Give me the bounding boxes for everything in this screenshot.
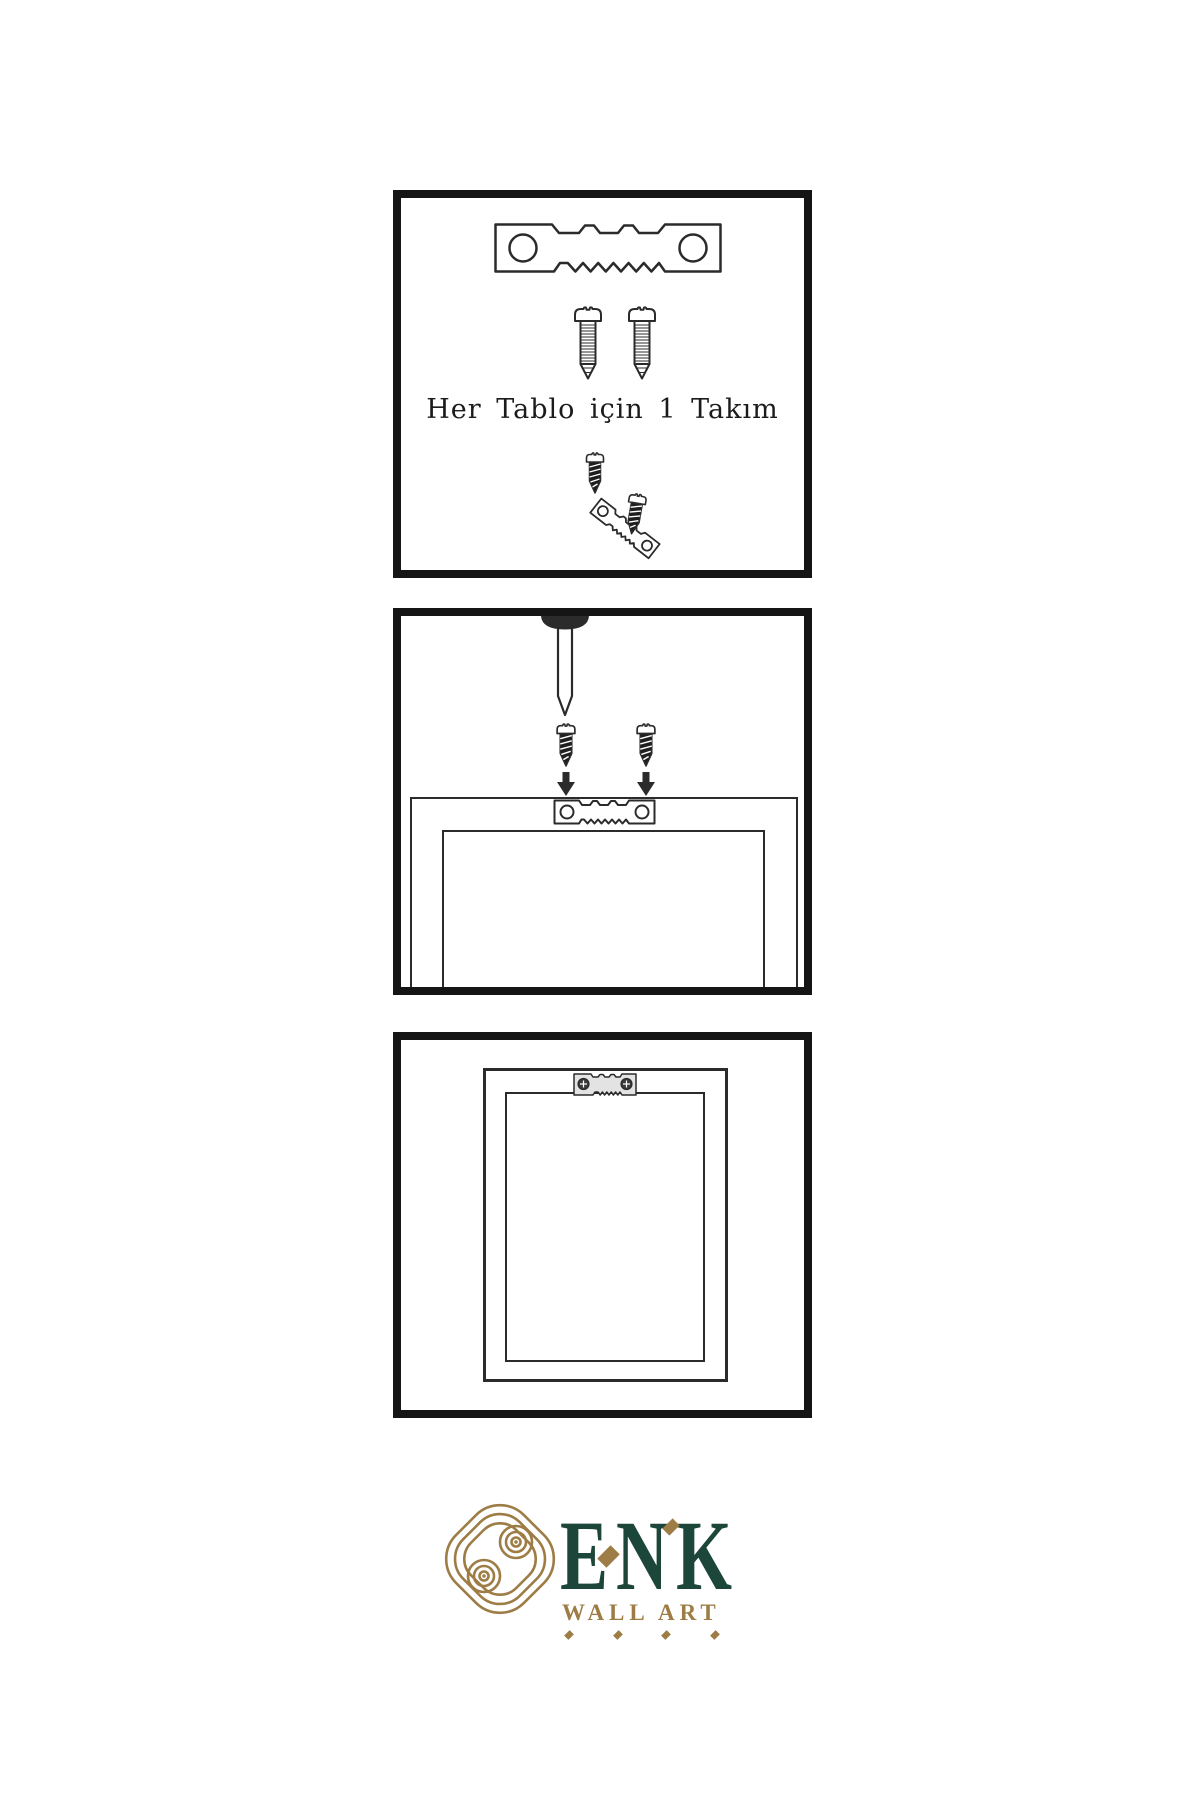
brand-name: ENK — [560, 1506, 740, 1605]
sawtooth-hanger-with-screws-icon — [573, 1073, 637, 1096]
brand-subtitle: WALL ART — [562, 1600, 721, 1626]
dark-screw-icon — [635, 722, 657, 768]
dark-screw-icon — [555, 722, 577, 768]
diamond-dot-icon — [613, 1630, 623, 1640]
frame-back-inner — [442, 830, 765, 995]
down-arrow-icon — [557, 772, 575, 796]
diamond-dot-icon — [564, 1630, 574, 1640]
screw-icon — [573, 306, 603, 380]
diamond-row — [566, 1632, 718, 1638]
brand-lockup: ENK WALL ART — [560, 1506, 770, 1646]
panel-hardware-kit: Her Tablo için 1 Takım — [393, 190, 812, 578]
sawtooth-hanger-icon — [553, 799, 656, 825]
picture-frame-inner — [505, 1092, 705, 1362]
brand-knot-icon — [440, 1496, 560, 1622]
kit-caption: Her Tablo için 1 Takım — [401, 394, 804, 425]
panel-hang-frame — [393, 1032, 812, 1418]
diamond-dot-icon — [710, 1630, 720, 1640]
instruction-sheet: Her Tablo için 1 Takım — [0, 0, 1200, 1800]
screw-icon — [627, 306, 657, 380]
down-arrow-icon — [637, 772, 655, 796]
wall-nail-icon — [541, 616, 589, 718]
panel-attach-hanger — [393, 608, 812, 995]
diamond-dot-icon — [661, 1630, 671, 1640]
sawtooth-hanger-icon — [493, 222, 723, 274]
dark-screw-icon — [585, 451, 605, 495]
